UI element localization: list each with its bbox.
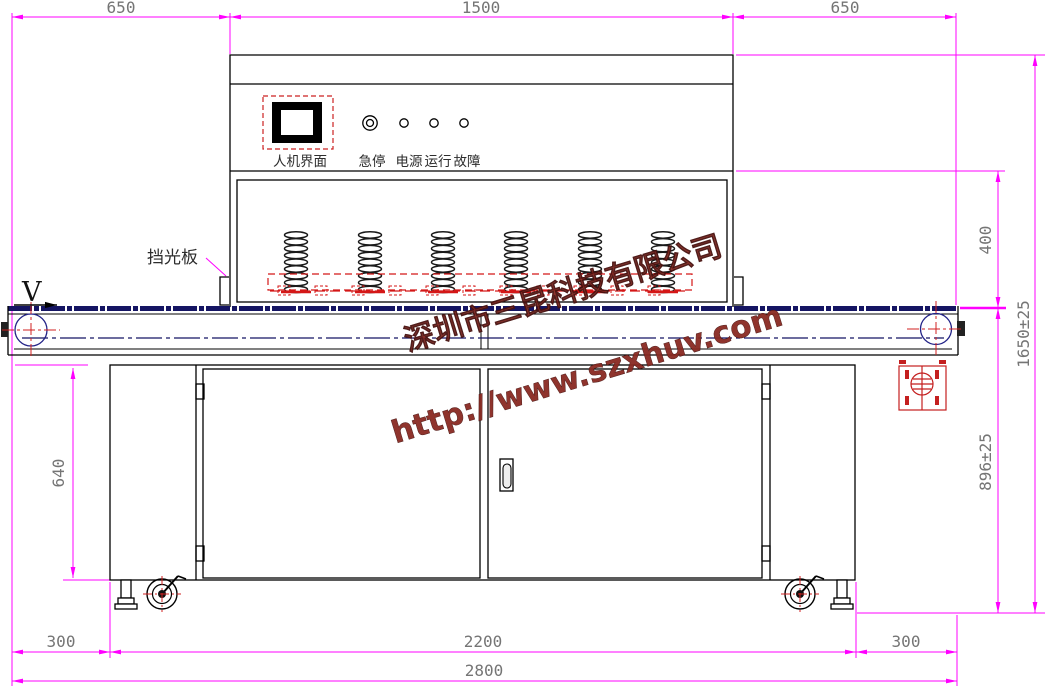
hinge-icon <box>762 546 770 561</box>
label-run: 运行 <box>425 154 452 170</box>
caster-icon <box>143 576 186 612</box>
leveling-foot-right <box>831 580 853 609</box>
leveling-foot-left <box>115 580 137 609</box>
light-shield-plate-left <box>220 277 229 305</box>
run-lamp-icon <box>430 119 438 127</box>
cad-drawing-uv-curing-machine: 650 1500 650 400 896±25 1650±25 640 300 … <box>0 0 1049 692</box>
spring-icon <box>359 232 382 293</box>
label-power: 电源 <box>396 154 423 170</box>
label-estop: 急停 <box>359 153 386 170</box>
spring-icon <box>285 232 308 293</box>
label-hmi: 人机界面 <box>273 154 327 170</box>
control-panel: 人机界面 急停 电源 运行 故障 <box>263 96 481 170</box>
dim-bottom-right: 300 <box>892 632 921 651</box>
label-fault: 故障 <box>454 154 481 170</box>
dim-top-center: 1500 <box>462 0 501 17</box>
power-lamp-icon <box>400 119 408 127</box>
spring-icon <box>432 232 455 293</box>
dim-top-left: 650 <box>107 0 136 17</box>
light-shield-plate-right <box>734 277 743 305</box>
caster-icon <box>781 576 824 612</box>
hmi-screen <box>281 110 313 135</box>
spring-icon <box>505 232 528 293</box>
dim-bottom-left: 300 <box>47 632 76 651</box>
label-light-shield: 挡光板 <box>147 248 198 268</box>
dim-tunnel-height: 400 <box>976 226 995 255</box>
dim-total-height: 1650±25 <box>1014 300 1033 367</box>
label-belt-direction: V <box>21 277 42 308</box>
fault-lamp-icon <box>460 119 468 127</box>
drive-motor-box <box>899 360 946 410</box>
dim-belt-height: 896±25 <box>976 433 995 491</box>
light-shield-leader-line <box>206 258 226 276</box>
dim-top-right: 650 <box>831 0 860 17</box>
hinge-icon <box>762 384 770 399</box>
estop-button-icon <box>363 116 377 130</box>
dim-bottom-total: 2800 <box>465 661 504 680</box>
dim-bottom-cabinet: 2200 <box>464 632 503 651</box>
dim-cabinet-height: 640 <box>49 459 68 488</box>
